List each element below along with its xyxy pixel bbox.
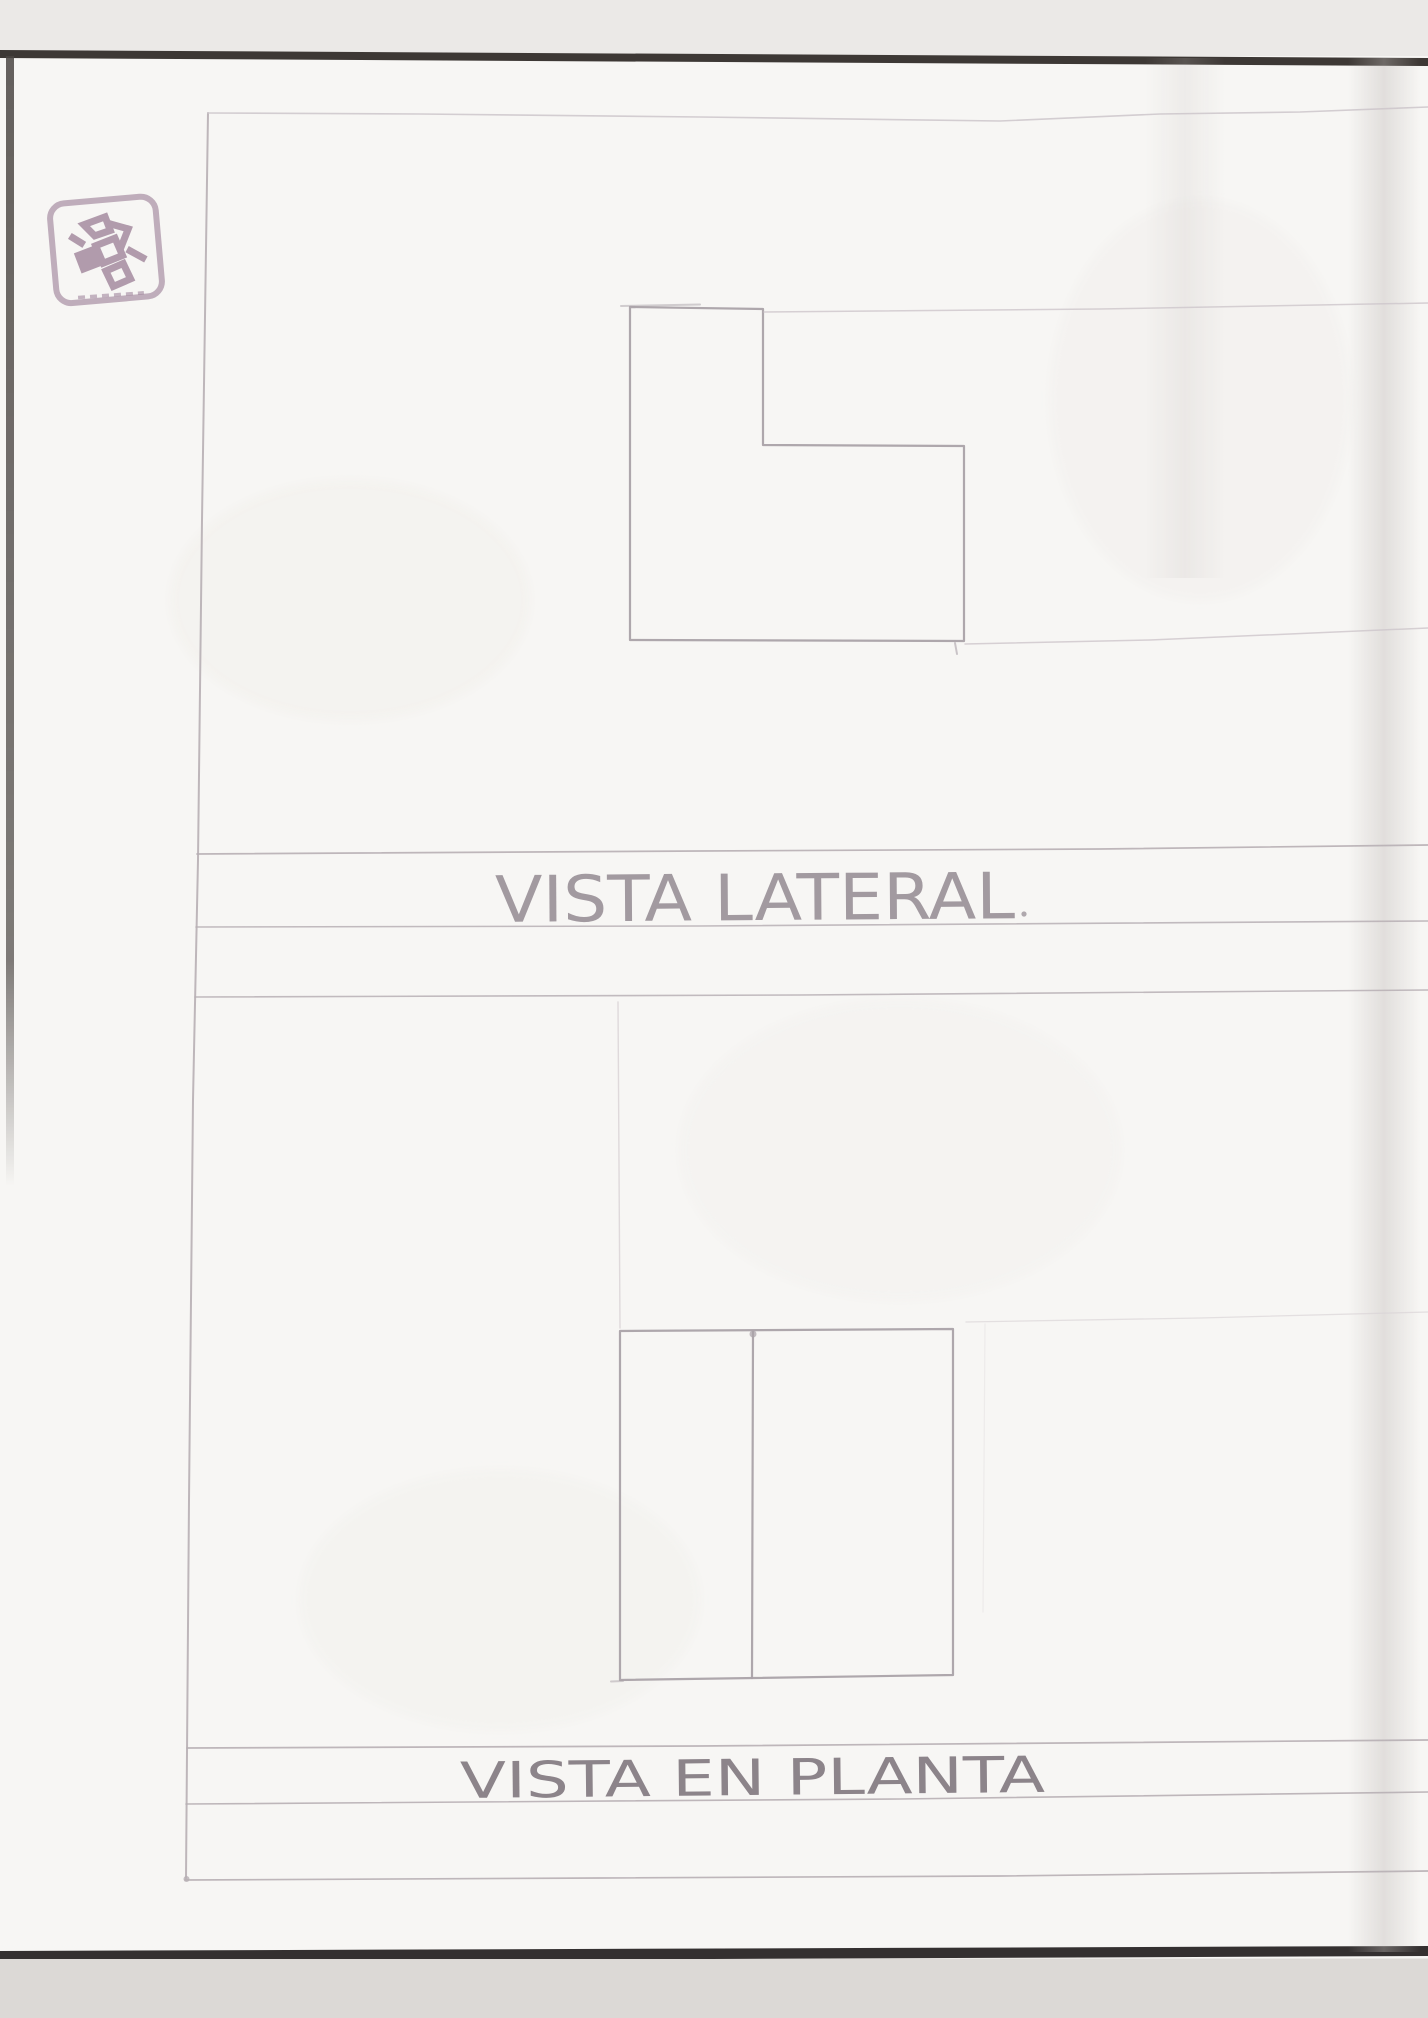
scanned-drawing-sheet: VISTA LATERAL VISTA EN PLANTA [0, 0, 1428, 2018]
plan-view-bottom-overshoot [611, 1681, 623, 1682]
scan-image: VISTA LATERAL VISTA EN PLANTA [0, 0, 1428, 2018]
plan-view-divider-start-blob [750, 1331, 757, 1338]
scanner-background-bottom [0, 1959, 1428, 2018]
plan-view-divider [752, 1332, 753, 1678]
plan-view-caption: VISTA EN PLANTA [460, 1746, 1046, 1810]
page-left-edge [6, 56, 14, 1186]
paper-crease-upper-right [1145, 58, 1225, 578]
side-view-caption: VISTA LATERAL [495, 860, 1016, 938]
side-view-caption-period [1021, 911, 1026, 916]
frame-left-border-end-blob [184, 1876, 190, 1882]
paper-crease-right [1348, 58, 1420, 1952]
scanner-background-top [0, 0, 1428, 58]
